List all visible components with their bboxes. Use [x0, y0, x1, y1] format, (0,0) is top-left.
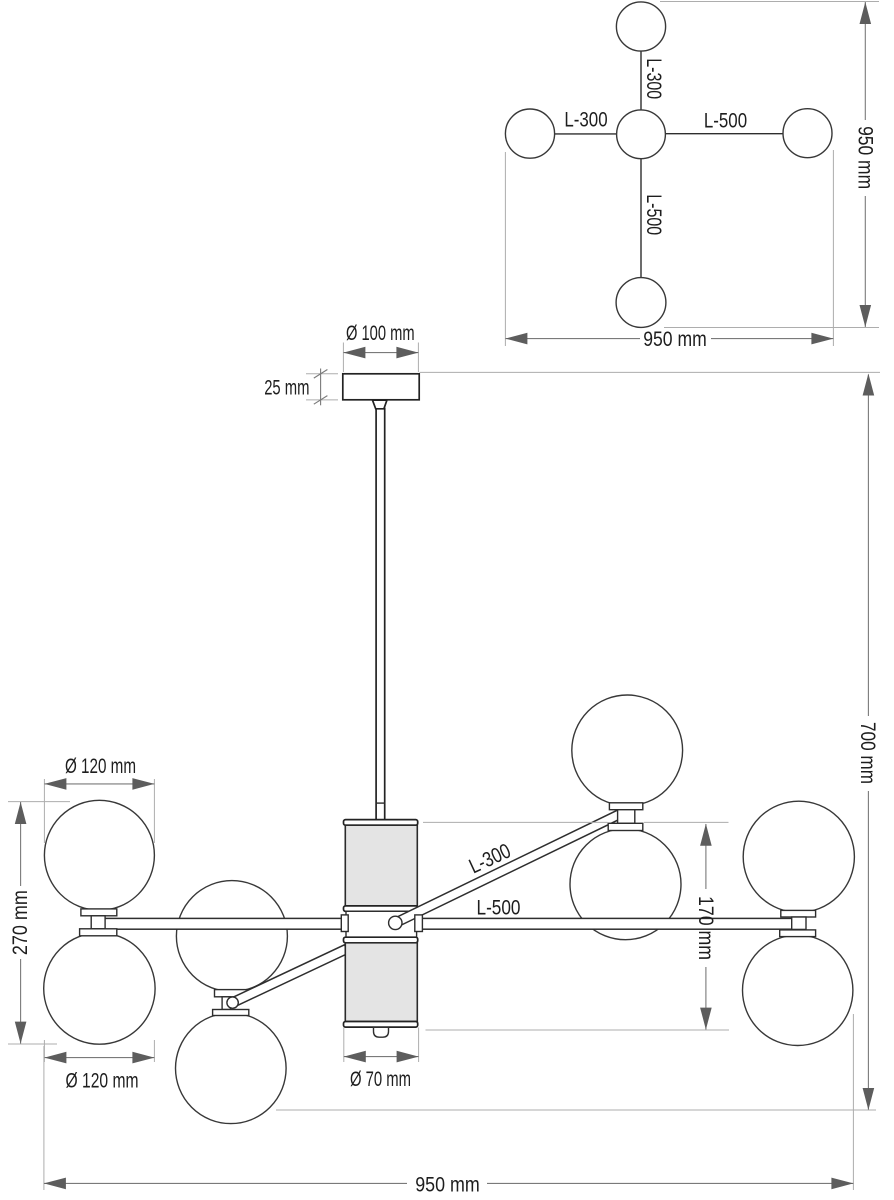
svg-text:950 mm: 950 mm: [643, 328, 707, 351]
svg-text:L-500: L-500: [477, 896, 521, 919]
svg-text:Ø 100 mm: Ø 100 mm: [346, 322, 415, 345]
svg-text:L-500: L-500: [642, 194, 665, 235]
svg-text:950 mm: 950 mm: [854, 126, 877, 189]
svg-text:25 mm: 25 mm: [264, 376, 309, 399]
svg-text:950 mm: 950 mm: [415, 1173, 480, 1196]
svg-text:Ø 120 mm: Ø 120 mm: [65, 755, 136, 778]
svg-text:Ø 120 mm: Ø 120 mm: [66, 1070, 139, 1093]
svg-text:L-300: L-300: [642, 58, 665, 99]
svg-text:270 mm: 270 mm: [9, 890, 32, 955]
svg-text:170 mm: 170 mm: [694, 896, 717, 960]
svg-text:Ø 70 mm: Ø 70 mm: [350, 1068, 411, 1091]
svg-text:700 mm: 700 mm: [856, 722, 879, 784]
svg-text:L-500: L-500: [704, 110, 747, 133]
svg-text:L-300: L-300: [564, 108, 607, 131]
